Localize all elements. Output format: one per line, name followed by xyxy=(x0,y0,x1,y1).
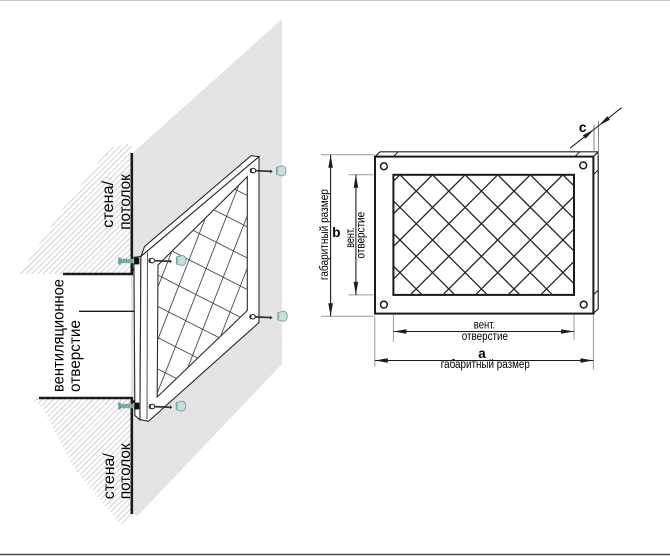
svg-text:отверстие: отверстие xyxy=(67,320,84,392)
svg-text:отверстие: отверстие xyxy=(356,212,368,259)
svg-text:стена/: стена/ xyxy=(100,180,117,228)
svg-text:вентиляционное: вентиляционное xyxy=(50,279,67,392)
svg-text:отверстие: отверстие xyxy=(462,331,508,343)
svg-text:c: c xyxy=(579,120,587,135)
svg-text:габаритный размер: габаритный размер xyxy=(441,359,530,371)
svg-text:габаритный размер: габаритный размер xyxy=(319,189,331,280)
svg-text:b: b xyxy=(332,225,340,240)
svg-text:потолок: потолок xyxy=(117,443,134,499)
svg-text:вент.: вент. xyxy=(474,319,495,331)
svg-text:стена/: стена/ xyxy=(101,452,118,499)
svg-text:потолок: потолок xyxy=(117,174,134,230)
